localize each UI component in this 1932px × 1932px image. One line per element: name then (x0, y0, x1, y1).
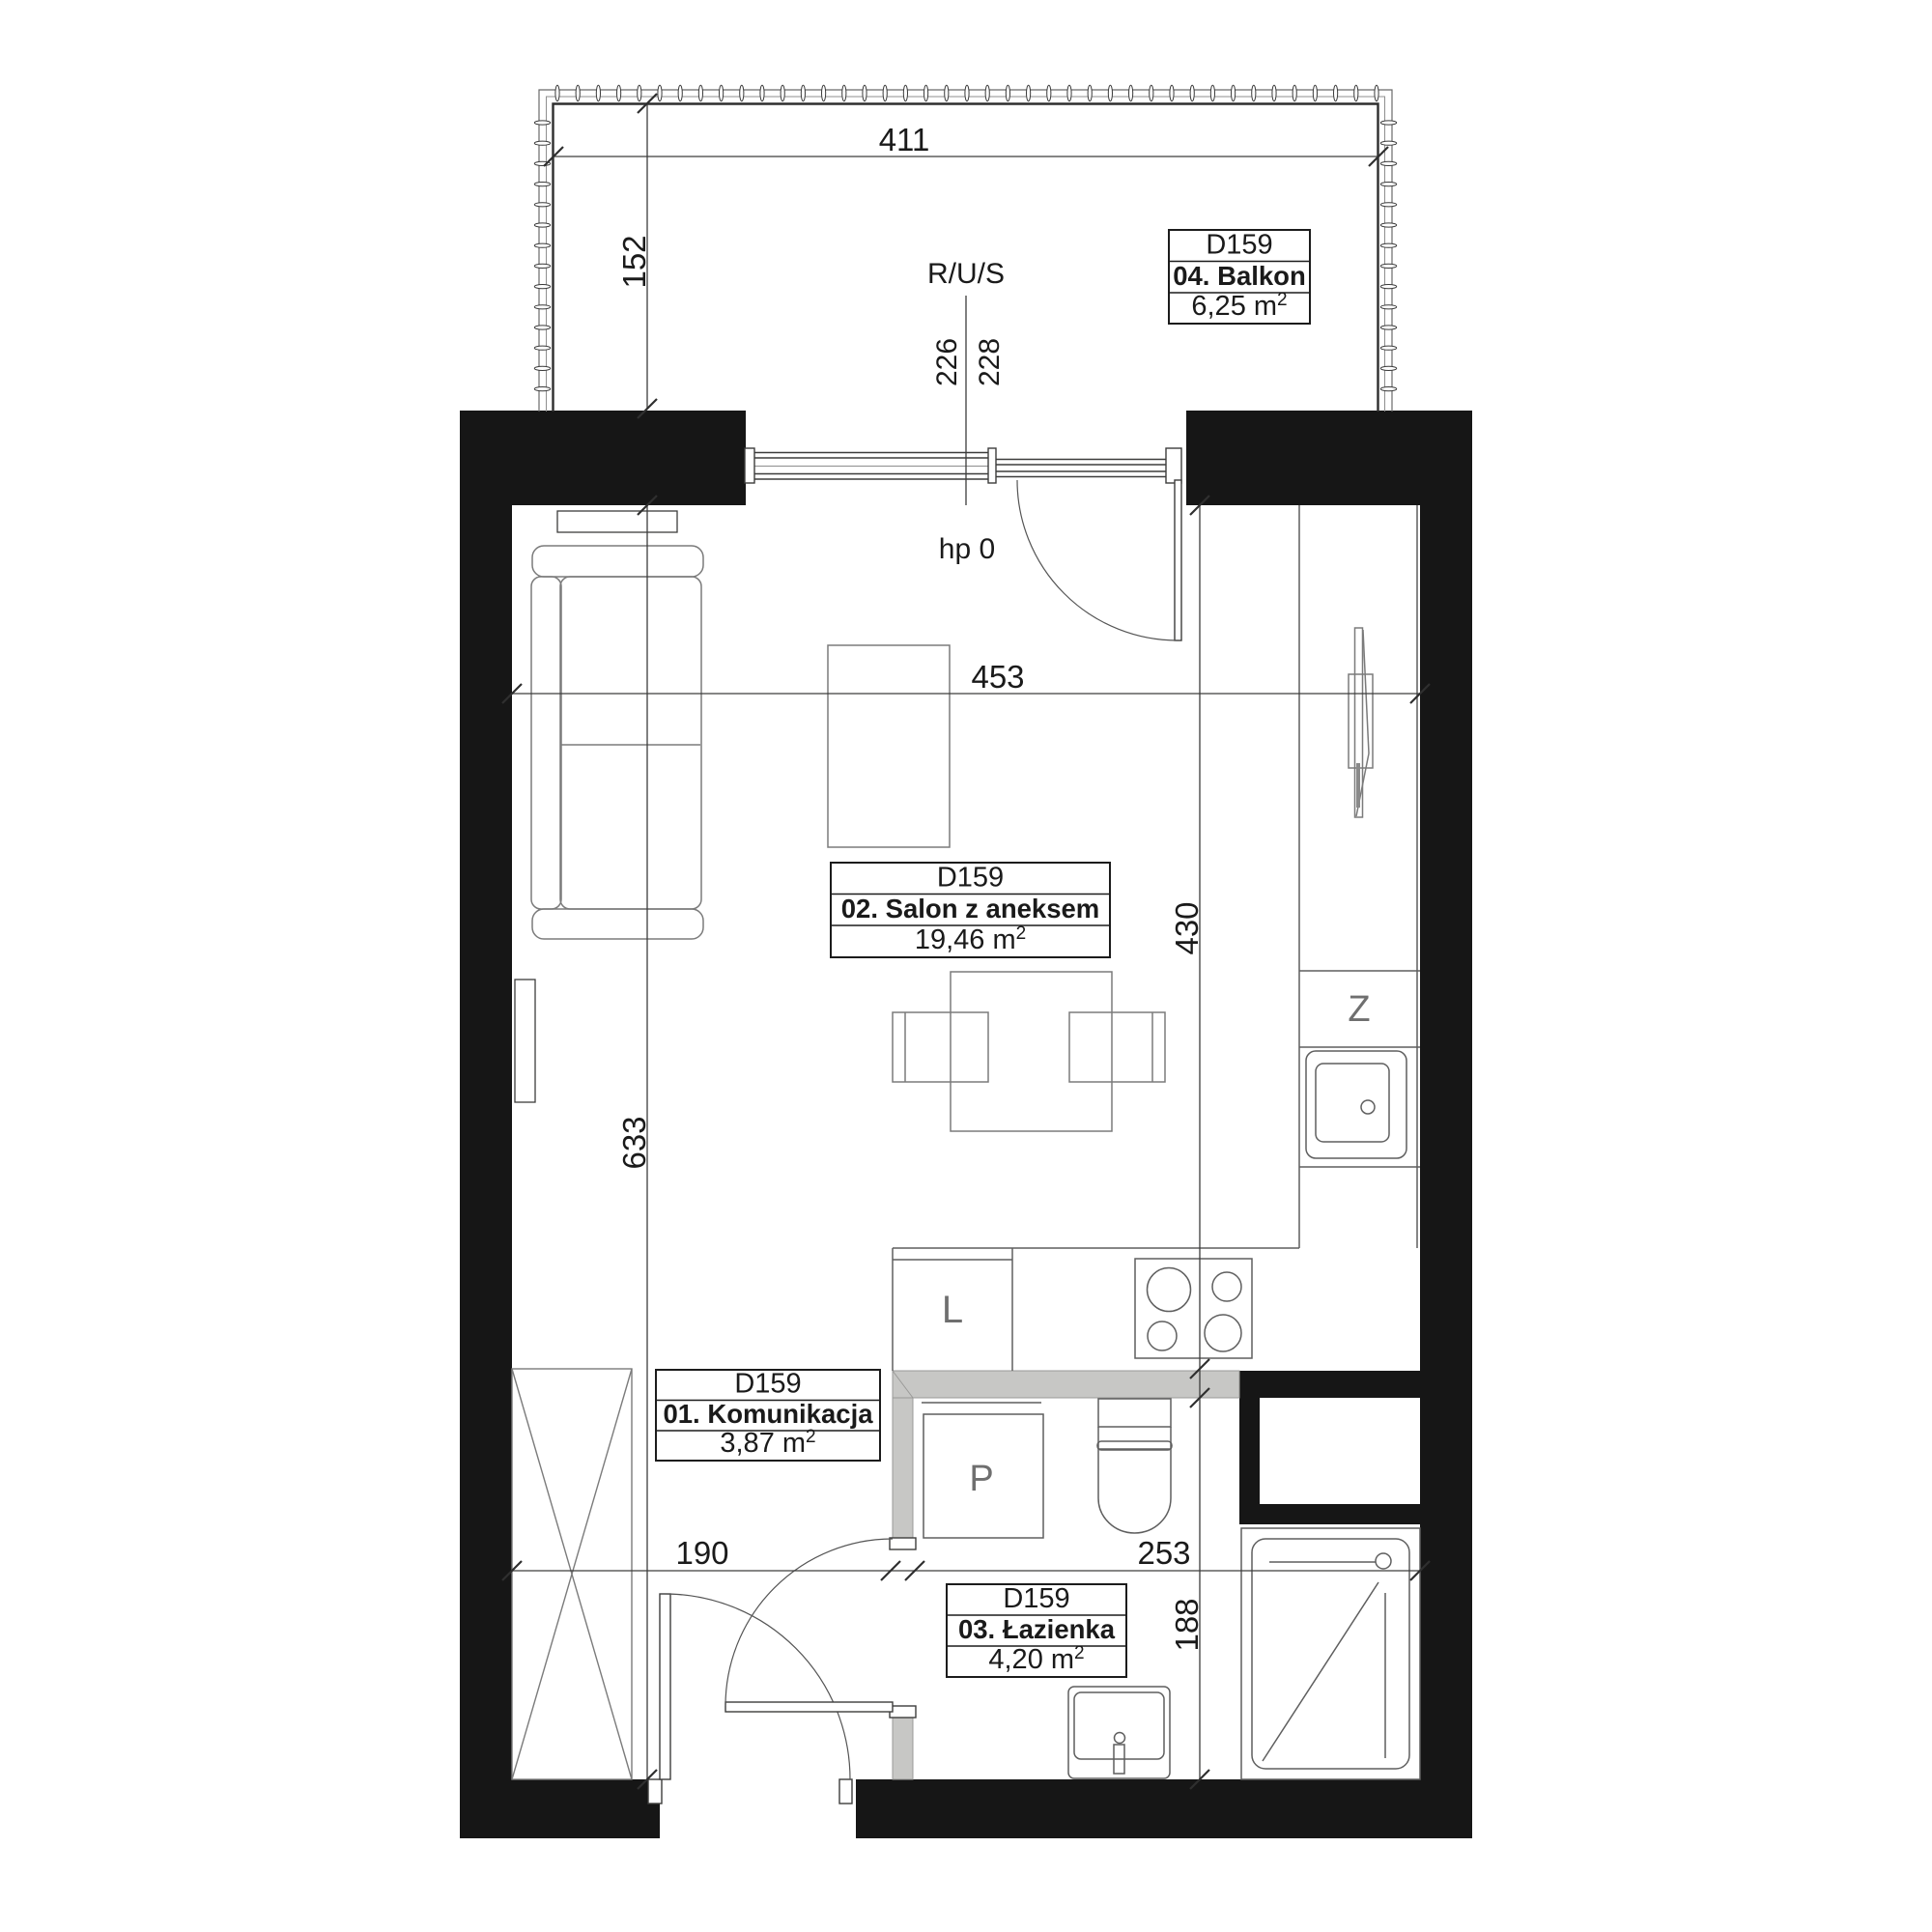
svg-text:453: 453 (971, 659, 1024, 695)
svg-text:Z: Z (1348, 989, 1370, 1030)
svg-text:228: 228 (974, 338, 1006, 386)
svg-text:253: 253 (1137, 1535, 1190, 1571)
svg-text:633: 633 (616, 1116, 652, 1169)
svg-text:190: 190 (675, 1535, 728, 1571)
svg-text:02. Salon z aneksem: 02. Salon z aneksem (841, 894, 1100, 923)
svg-text:01. Komunikacja: 01. Komunikacja (663, 1399, 873, 1429)
svg-text:hp 0: hp 0 (939, 533, 995, 565)
svg-text:152: 152 (616, 235, 652, 288)
svg-text:226: 226 (931, 338, 963, 386)
svg-text:411: 411 (879, 122, 930, 157)
svg-text:03. Łazienka: 03. Łazienka (958, 1614, 1116, 1644)
svg-text:D159: D159 (734, 1369, 801, 1400)
svg-text:430: 430 (1169, 901, 1205, 954)
svg-text:R/U/S: R/U/S (927, 258, 1005, 290)
svg-text:188: 188 (1169, 1598, 1205, 1651)
svg-text:D159: D159 (937, 863, 1004, 894)
svg-text:P: P (969, 1459, 993, 1499)
svg-text:L: L (942, 1289, 963, 1331)
svg-text:D159: D159 (1003, 1583, 1069, 1614)
svg-text:4,20 m2: 4,20 m2 (988, 1643, 1084, 1675)
svg-text:D159: D159 (1206, 230, 1272, 261)
svg-text:6,25 m2: 6,25 m2 (1191, 290, 1287, 322)
svg-text:04. Balkon: 04. Balkon (1173, 261, 1306, 291)
svg-text:19,46 m2: 19,46 m2 (915, 923, 1026, 955)
svg-text:3,87 m2: 3,87 m2 (720, 1427, 815, 1459)
